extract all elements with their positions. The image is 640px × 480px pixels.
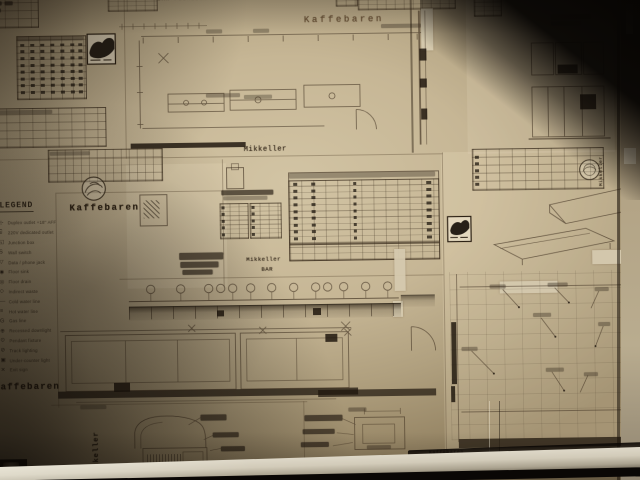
top-plan-lines [119,11,427,149]
legend-item-label: Junction box [8,240,35,245]
legend-item-label: Floor drain [9,279,32,284]
adjacent-wall-strip [621,0,640,480]
legend-item-label: Cold water line [9,299,40,304]
legend-symbol-icon: ≡ [0,308,9,314]
legend-symbol-icon: ⌸ [0,230,8,237]
legend-item-label: Gas line [9,318,26,323]
legend-symbol-icon: G [0,318,9,324]
architect-round-stamp-icon [578,158,601,181]
legend-symbol-icon: S [0,250,8,256]
bar-label-center: BAR [261,266,273,273]
architect-round-stamp-icon [80,175,107,202]
legend-rows: ⊹Duplex outlet +18" AFF⌸220V dedicated o… [0,218,58,376]
wall-tab [624,148,636,164]
plan-linework [0,0,637,479]
woodcut-logo-stamp-icon [447,214,472,244]
legend-item: ✕Exit sign [0,365,58,376]
legend-item-label: Data / phone jack [8,259,45,265]
legend-item-label: Floor sink [8,269,29,274]
isometric-counter-lines [493,189,634,266]
legend-title: LEGEND [0,201,33,212]
legend-item-label: Hot water line [9,309,38,314]
legend-item-label: 220V dedicated outlet [8,230,54,236]
legend-symbol-icon: ▣ [1,357,10,363]
legend-symbol-icon: ✕ [1,367,10,373]
legend-symbol-icon: ⊘ [0,348,9,354]
woodcut-logo-stamp-icon [86,33,116,65]
legend-symbol-icon: ⊙ [0,338,9,344]
legend-item-label: Recessed downlight [9,328,51,334]
mikkeller-label-seam: Mikkeller [244,145,287,154]
top-right-elevation-lines [527,42,610,139]
legend-item-label: Track lighting [9,348,37,353]
kaffebaren-label-mid-left: Kaffebaren [69,203,139,214]
legend-item-label: Pendant fixture [9,338,41,343]
kaffebaren-label-bottom-left: Kaffebaren [0,382,60,393]
legend-symbol-icon: ▽ [0,259,8,265]
legend-symbol-icon: ◱ [0,240,8,246]
legend-item-label: Indirect waste [9,289,38,294]
legend-symbol-icon: ⊹ [0,220,8,226]
blueprint-sheets: Kaffebaren BAR PLUMBING DETAILS Mikkelle… [0,0,640,480]
legend-item-label: Wall switch [8,250,32,255]
legend-panel: LEGEND ⊹Duplex outlet +18" AFF⌸220V dedi… [0,194,58,376]
legend-item-label: Duplex outlet +18" AFF [8,220,56,226]
legend-symbol-icon: — [0,299,9,305]
plan-dark-fills [109,46,600,407]
mikkeller-label-right-vertical: Mikkeller [599,150,605,186]
wall-corner-line [617,0,620,480]
legend-symbol-icon: ◉ [0,269,8,275]
right-plan-lines [456,258,625,444]
legend-symbol-icon: ◇ [0,289,9,295]
legend-symbol-icon: ◎ [0,279,9,285]
mikkeller-label-center: Mikkeller [246,256,281,263]
bottom-detail-lines [332,408,405,450]
photo-of-blueprint-wall: Kaffebaren BAR PLUMBING DETAILS Mikkelle… [0,0,640,480]
legend-item-label: Exit sign [10,367,28,372]
kaffebaren-title-top: Kaffebaren [304,14,384,25]
legend-symbol-icon: ⊕ [0,328,9,334]
legend-item-label: Under-counter light [10,357,50,363]
wall-fixture-sliver [626,4,633,34]
